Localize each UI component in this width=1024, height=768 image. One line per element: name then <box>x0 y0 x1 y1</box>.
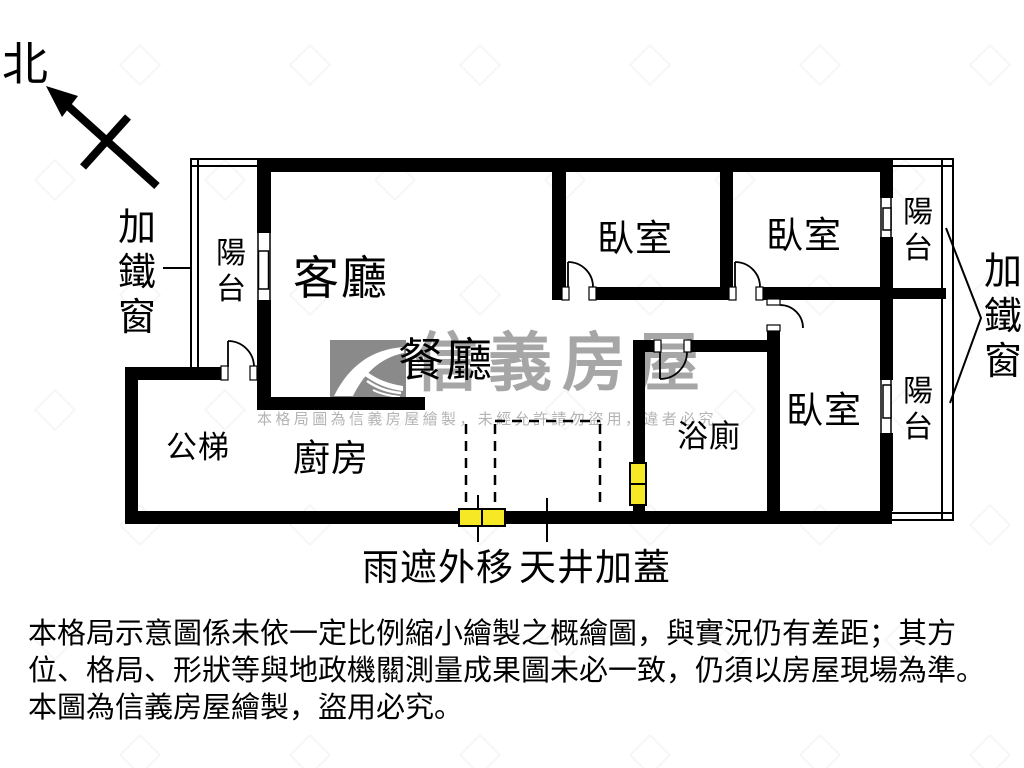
skylight-dashed-outline <box>466 421 600 509</box>
iron-window-left-label: 加鐵窗 <box>116 206 158 340</box>
door-arc-bathroom <box>660 352 687 379</box>
room-label-bedroom1: 臥室 <box>597 208 673 262</box>
window-bedroom3-east <box>883 385 891 418</box>
room-label-dining: 餐廳 <box>398 324 494 390</box>
room-label-balcony-top-right: 陽台 <box>902 195 934 267</box>
wall-bedroom3-west <box>767 327 780 517</box>
room-label-bedroom3: 臥室 <box>786 380 862 434</box>
floor-plan-page: 信義房屋 本格局圖為信義房屋繪製，未經允許請勿盜用，違者必究 <box>0 0 1024 768</box>
wall-bath-top-right <box>687 340 767 352</box>
room-label-kitchen: 廚房 <box>293 428 369 482</box>
room-label-balcony-bottom-right: 陽台 <box>902 374 934 446</box>
wall-bedroom3-east-upper <box>880 287 893 380</box>
brand-logo-icon <box>330 340 406 397</box>
north-arrow-icon <box>46 86 157 186</box>
annotation-rain-shade: 雨遮外移 <box>362 537 514 591</box>
wall-living-west-upper <box>257 158 271 233</box>
door-arc-stairs <box>228 341 254 367</box>
wall-bedroom2-east-upper <box>880 158 893 198</box>
wall-stairs-top <box>125 367 228 380</box>
room-label-balcony-left: 陽台 <box>215 236 247 308</box>
disclaimer-text: 本格局示意圖係未依一定比例縮小繪製之概繪圖，與實況仍有差距；其方 位、格局、形狀… <box>28 616 1013 727</box>
annotation-skylight: 天井加蓋 <box>519 537 671 591</box>
wall-middle-b <box>590 287 735 300</box>
right-iron-window-bracket <box>946 228 981 403</box>
north-label: 北 <box>2 42 48 88</box>
disclaimer-line-3: 本圖為信義房屋繪製，盜用必究。 <box>28 690 1013 727</box>
door-arc-bedroom2 <box>735 262 760 287</box>
door-arc-bedroom1 <box>568 262 593 287</box>
room-label-stairs: 公梯 <box>166 422 230 467</box>
door-arc-bedroom3 <box>780 305 803 328</box>
wall-balcony-divider <box>892 288 946 299</box>
room-label-bathroom: 浴廁 <box>677 411 741 456</box>
wall-living-west-lower <box>257 300 271 410</box>
room-label-living: 客廳 <box>293 242 389 308</box>
wall-bedroom-divider <box>720 158 733 300</box>
disclaimer-line-2: 位、格局、形狀等與地政機關測量成果圖未必一致，仍須以房屋現場為準。 <box>28 653 1013 690</box>
wall-kitchen-top <box>257 397 425 410</box>
wall-stairs-left <box>125 367 138 524</box>
wall-bedroom1-west <box>552 158 566 300</box>
window-living-west <box>259 251 269 289</box>
wall-top <box>257 158 892 172</box>
window-bedroom2-east <box>883 208 891 230</box>
room-label-bedroom2: 臥室 <box>766 205 842 259</box>
iron-window-right-label: 加鐵窗 <box>982 250 1024 384</box>
disclaimer-line-1: 本格局示意圖係未依一定比例縮小繪製之概繪圖，與實況仍有差距；其方 <box>28 616 1013 653</box>
wall-bedroom3-east-lower <box>880 433 893 511</box>
